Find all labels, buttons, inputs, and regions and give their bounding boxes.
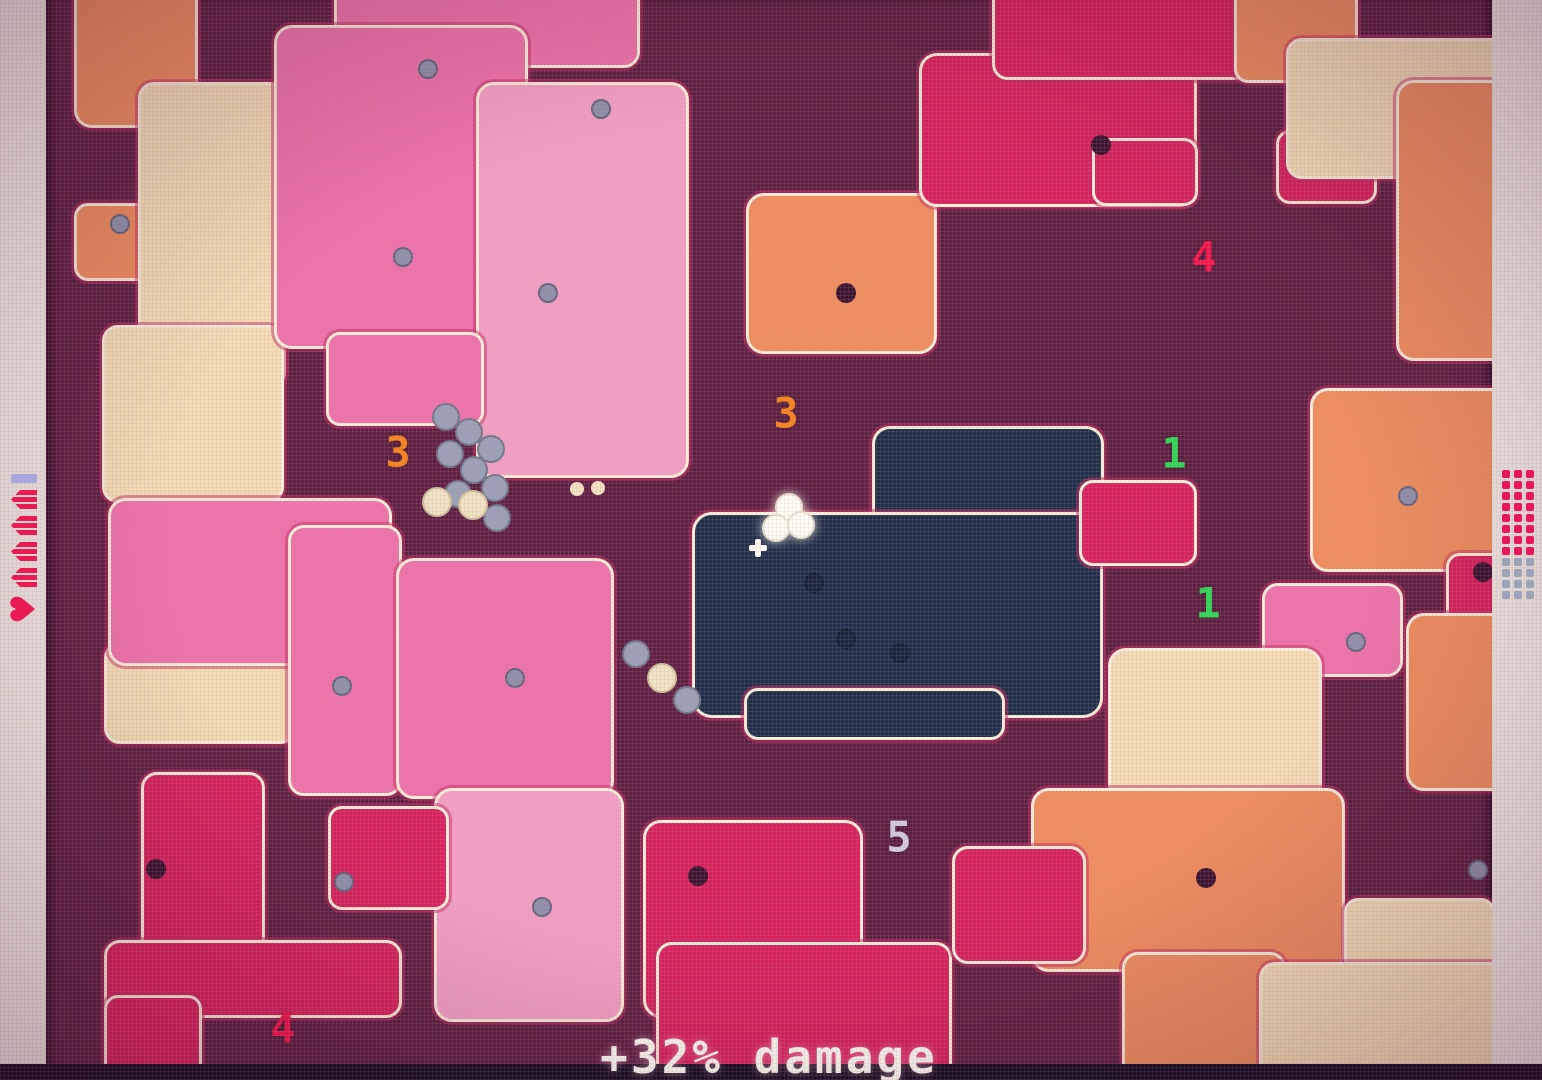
ammo-dot-row — [1502, 503, 1534, 511]
map-dot-cream — [591, 481, 605, 495]
heart-icon: ♥ — [9, 594, 39, 624]
map-region-crimson — [1079, 480, 1197, 566]
map-region-tan — [1108, 648, 1322, 802]
ammo-dot — [1526, 591, 1534, 599]
map-dot-gray — [538, 283, 558, 303]
ammo-dot — [1514, 569, 1522, 577]
map-dot-gray — [418, 59, 438, 79]
map-region-salmon — [1310, 388, 1492, 572]
player-character — [787, 511, 815, 539]
ammo-dot-row — [1502, 591, 1534, 599]
water-bubble — [836, 629, 856, 649]
game-viewport[interactable]: 3341154 +32% damage — [46, 0, 1492, 1080]
room-number: 4 — [270, 1004, 295, 1053]
ammo-dot-row — [1502, 481, 1534, 489]
ammo-dot — [1526, 536, 1534, 544]
map-dot-dark — [836, 283, 856, 303]
upgrade-banner-text: +32% damage — [600, 1030, 938, 1080]
room-number: 1 — [1195, 579, 1220, 628]
ammo-dot — [1502, 569, 1510, 577]
ammo-dot-row — [1502, 580, 1534, 588]
enemy-blob-cream — [647, 663, 677, 693]
ammo-dot-row — [1502, 547, 1534, 555]
map-dot-dark — [1196, 868, 1216, 888]
map-region-pink — [326, 332, 484, 426]
room-number: 3 — [385, 428, 410, 477]
map-dot-dark — [1091, 135, 1111, 155]
enemy-blob-cream — [458, 490, 488, 520]
game-screen: 3341154 +32% damage ♥ — [0, 0, 1542, 1080]
ammo-dot-row — [1502, 514, 1534, 522]
enemy-blob-gray — [673, 686, 701, 714]
map-region-lightpink — [434, 788, 624, 1022]
ammo-dot — [1502, 536, 1510, 544]
ammo-dot — [1514, 558, 1522, 566]
charge-chevron-icon — [11, 568, 37, 587]
ammo-dot — [1502, 547, 1510, 555]
enemy-blob-gray — [436, 440, 464, 468]
ammo-dot — [1514, 547, 1522, 555]
map-dot-gray — [591, 99, 611, 119]
ammo-dot — [1514, 481, 1522, 489]
map-dot-dark — [1473, 562, 1492, 582]
map-region-tan — [102, 325, 284, 503]
ammo-dot — [1526, 470, 1534, 478]
ammo-dot — [1526, 580, 1534, 588]
ammo-dot — [1526, 492, 1534, 500]
ammo-dot — [1514, 492, 1522, 500]
map-region-salmon — [746, 193, 937, 354]
room-number: 3 — [773, 389, 798, 438]
map-dot-dark — [688, 866, 708, 886]
ammo-dot-row — [1502, 536, 1534, 544]
ammo-dot-row — [1502, 525, 1534, 533]
ammo-dot-row — [1502, 558, 1534, 566]
map-region-tan — [1259, 962, 1492, 1080]
map-dot-gray — [110, 214, 130, 234]
ammo-dot — [1526, 514, 1534, 522]
ammo-dot — [1502, 503, 1510, 511]
map-layer: 3341154 — [46, 0, 1492, 1080]
map-dot-cream — [570, 482, 584, 496]
health-hud: ♥ — [7, 474, 41, 624]
room-number: 4 — [1191, 233, 1216, 282]
map-region-pink — [288, 525, 402, 796]
player-character — [762, 514, 790, 542]
map-region-salmon — [1396, 80, 1492, 361]
ammo-dot — [1514, 503, 1522, 511]
enemy-blob-gray — [622, 640, 650, 668]
map-dot-gray — [505, 668, 525, 688]
ammo-dot — [1502, 580, 1510, 588]
room-number: 1 — [1161, 429, 1186, 478]
map-region-navy — [744, 688, 1005, 740]
map-dot-gray — [532, 897, 552, 917]
map-region-crimson — [952, 846, 1086, 964]
ammo-dot-row — [1502, 470, 1534, 478]
ammo-dot — [1526, 503, 1534, 511]
map-region-crimson — [328, 806, 449, 910]
ammo-dot — [1526, 569, 1534, 577]
map-region-lightpink — [476, 82, 689, 478]
ammo-dot — [1502, 558, 1510, 566]
charge-chevron-icon — [11, 542, 37, 561]
ammo-dot — [1502, 481, 1510, 489]
ammo-dot — [1514, 591, 1522, 599]
map-region-salmon — [1406, 613, 1492, 791]
ammo-dot — [1502, 591, 1510, 599]
ammo-dot — [1502, 470, 1510, 478]
map-dot-gray — [334, 872, 354, 892]
water-bubble — [804, 573, 824, 593]
ammo-dot — [1502, 514, 1510, 522]
map-dot-gray — [1398, 486, 1418, 506]
ammo-dot — [1514, 536, 1522, 544]
ammo-dot — [1526, 558, 1534, 566]
map-dot-gray — [1468, 860, 1488, 880]
ammo-dot-row — [1502, 569, 1534, 577]
charge-chevron-icon — [11, 516, 37, 535]
ammo-dot — [1526, 525, 1534, 533]
ammo-dot — [1514, 470, 1522, 478]
room-number: 5 — [886, 813, 911, 862]
charge-chevron-icon — [11, 490, 37, 509]
map-dot-dark — [146, 859, 166, 879]
ammo-dot — [1514, 525, 1522, 533]
water-bubble — [890, 643, 910, 663]
map-dot-gray — [393, 247, 413, 267]
ammo-dot-row — [1502, 492, 1534, 500]
map-dot-gray — [1346, 632, 1366, 652]
hud-bar-icon — [11, 474, 37, 483]
ammo-dot — [1502, 525, 1510, 533]
ammo-dot — [1514, 514, 1522, 522]
ammo-dot — [1526, 481, 1534, 489]
map-dot-gray — [332, 676, 352, 696]
player-cross-icon — [749, 539, 767, 557]
enemy-blob-cream — [422, 487, 452, 517]
map-region-crimson — [992, 0, 1250, 80]
ammo-dot — [1526, 547, 1534, 555]
ammo-dot — [1514, 580, 1522, 588]
ammo-dot — [1502, 492, 1510, 500]
ammo-hud — [1502, 470, 1534, 599]
